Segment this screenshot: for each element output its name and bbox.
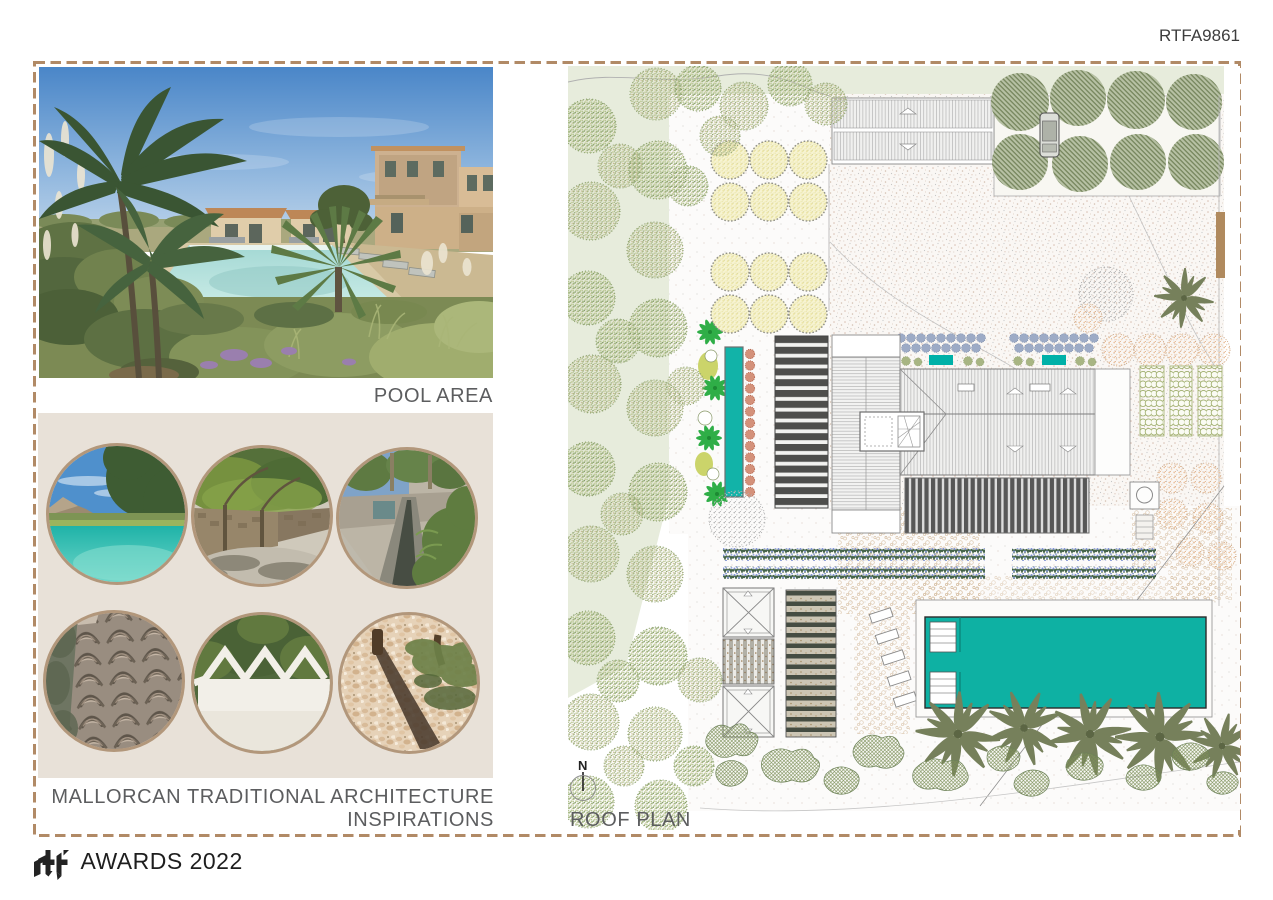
svg-text:N: N bbox=[578, 758, 587, 773]
